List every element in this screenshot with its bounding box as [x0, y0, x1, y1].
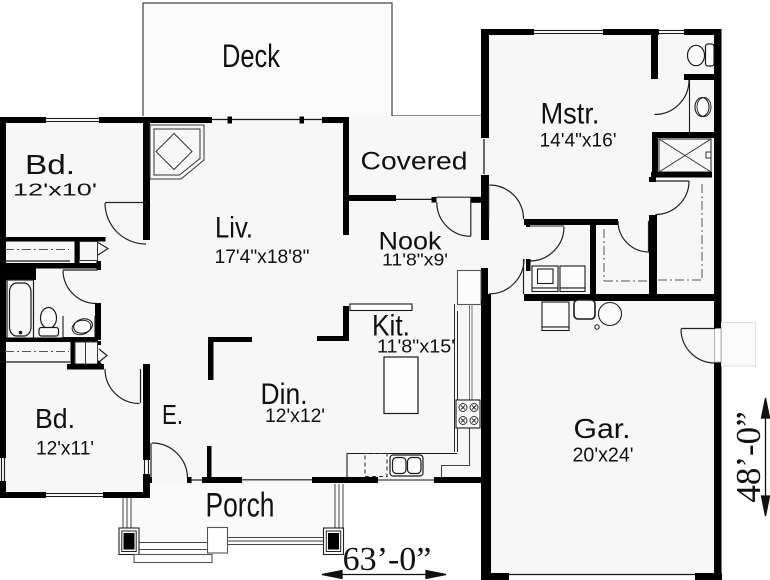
- svg-text:Mstr.: Mstr.: [541, 98, 600, 131]
- svg-text:Liv.: Liv.: [215, 212, 253, 245]
- svg-text:Gar.: Gar.: [574, 413, 631, 444]
- svg-text:Bd.: Bd.: [25, 149, 75, 180]
- svg-text:17'4"x18'8": 17'4"x18'8": [215, 247, 310, 268]
- svg-text:12'x10': 12'x10': [13, 180, 97, 200]
- svg-text:Porch: Porch: [206, 487, 275, 525]
- svg-text:12'x12': 12'x12': [265, 406, 325, 427]
- svg-text:11'8"x9': 11'8"x9': [382, 250, 448, 270]
- svg-text:Bd.: Bd.: [35, 403, 75, 434]
- svg-text:20'x24': 20'x24': [573, 445, 634, 467]
- svg-text:11'8"x15': 11'8"x15': [377, 337, 455, 357]
- svg-text:48’-0”: 48’-0”: [729, 411, 768, 502]
- svg-text:12'x11': 12'x11': [36, 439, 94, 460]
- svg-text:14'4"x16': 14'4"x16': [540, 131, 617, 152]
- svg-text:Covered: Covered: [361, 148, 468, 176]
- svg-text:E.: E.: [162, 399, 183, 430]
- svg-text:63’-0”: 63’-0”: [343, 541, 432, 578]
- svg-text:Deck: Deck: [222, 38, 281, 74]
